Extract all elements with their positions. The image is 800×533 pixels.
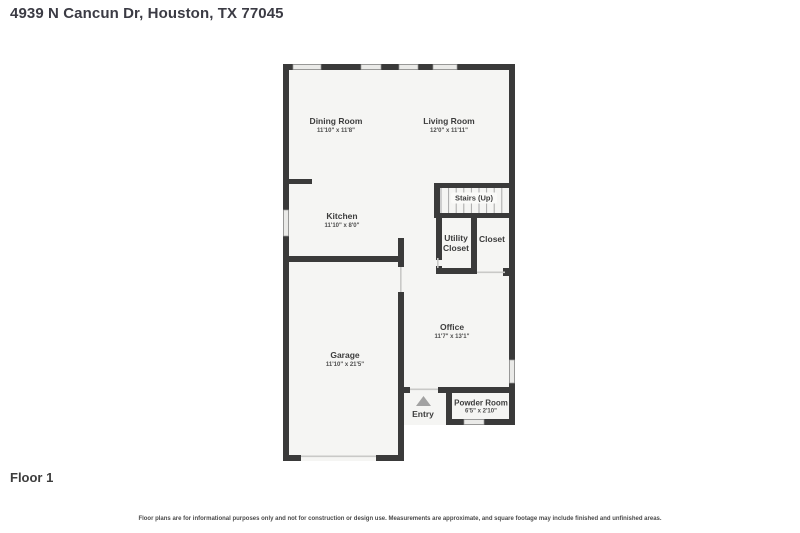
wall-garage-right-upper	[398, 262, 404, 267]
window	[293, 65, 321, 70]
room-label-entry: Entry	[412, 409, 434, 419]
room-label-utility-closet: Utility Closet	[436, 234, 476, 254]
room-name: Dining Room	[310, 117, 363, 127]
wall-dining-kitchen-stub	[289, 179, 312, 184]
floor-plan-page: Dining Room 11'10" x 11'8" Living Room 1…	[0, 0, 800, 533]
floor-label: Floor 1	[10, 470, 53, 485]
room-dimensions: 11'10" x 11'8"	[310, 128, 363, 135]
page-title: 4939 N Cancun Dr, Houston, TX 77045	[10, 5, 284, 22]
room-label-dining: Dining Room 11'10" x 11'8"	[310, 117, 363, 135]
garage-door-opening	[301, 456, 376, 458]
closet-door-opening	[477, 272, 505, 274]
wall-office-bottom-left	[404, 387, 410, 393]
room-dimensions: 12'0" x 11'11"	[423, 128, 474, 135]
room-name: Office	[435, 323, 470, 333]
room-dimensions: 11'10" x 8'0"	[325, 223, 360, 230]
window	[464, 420, 484, 425]
wall-closets-bottom	[436, 268, 477, 274]
utility-door-opening	[437, 258, 439, 268]
wall-stairs-bottom	[434, 213, 515, 218]
room-name: Garage	[326, 351, 364, 361]
wall-left	[283, 64, 289, 461]
wall-office-bottom-right	[438, 387, 515, 393]
room-label-kitchen: Kitchen 11'10" x 8'0"	[325, 212, 360, 230]
wall-powder-left	[446, 393, 452, 425]
window	[361, 65, 381, 70]
room-name: Closet	[479, 235, 505, 245]
room-label-office: Office 11'7" x 13'1"	[435, 323, 470, 341]
garage-hall-door-opening	[400, 267, 402, 292]
wall-kitchen-bottom	[283, 256, 404, 262]
room-label-living: Living Room 12'0" x 11'11"	[423, 117, 474, 135]
room-label-garage: Garage 11'10" x 21'5"	[326, 351, 364, 369]
wall-kitchen-right-stub	[398, 238, 404, 256]
room-name: Living Room	[423, 117, 474, 127]
floor-plan-drawing	[0, 0, 800, 533]
window	[510, 360, 515, 383]
room-name: Entry	[412, 409, 434, 419]
room-dimensions: 11'7" x 13'1"	[435, 334, 470, 341]
wall-stairs-left	[434, 183, 440, 218]
wall-garage-bottom-left	[283, 455, 301, 461]
window	[399, 65, 418, 70]
room-label-stairs: Stairs (Up)	[451, 193, 497, 204]
room-name: Utility Closet	[436, 234, 476, 254]
wall-stairs-top	[434, 183, 515, 188]
disclaimer-text: Floor plans are for informational purpos…	[0, 516, 800, 522]
wall-garage-right	[398, 292, 404, 461]
room-dimensions: 6'5" x 2'10"	[454, 409, 508, 416]
room-name: Kitchen	[325, 212, 360, 222]
room-label-closet: Closet	[479, 235, 505, 245]
window	[284, 210, 289, 236]
window	[433, 65, 457, 70]
room-dimensions: 11'10" x 21'5"	[326, 362, 364, 369]
room-name: Powder Room	[454, 398, 508, 407]
entry-door-opening	[410, 389, 438, 391]
room-name: Stairs (Up)	[455, 194, 493, 203]
room-label-powder: Powder Room 6'5" x 2'10"	[454, 398, 508, 415]
